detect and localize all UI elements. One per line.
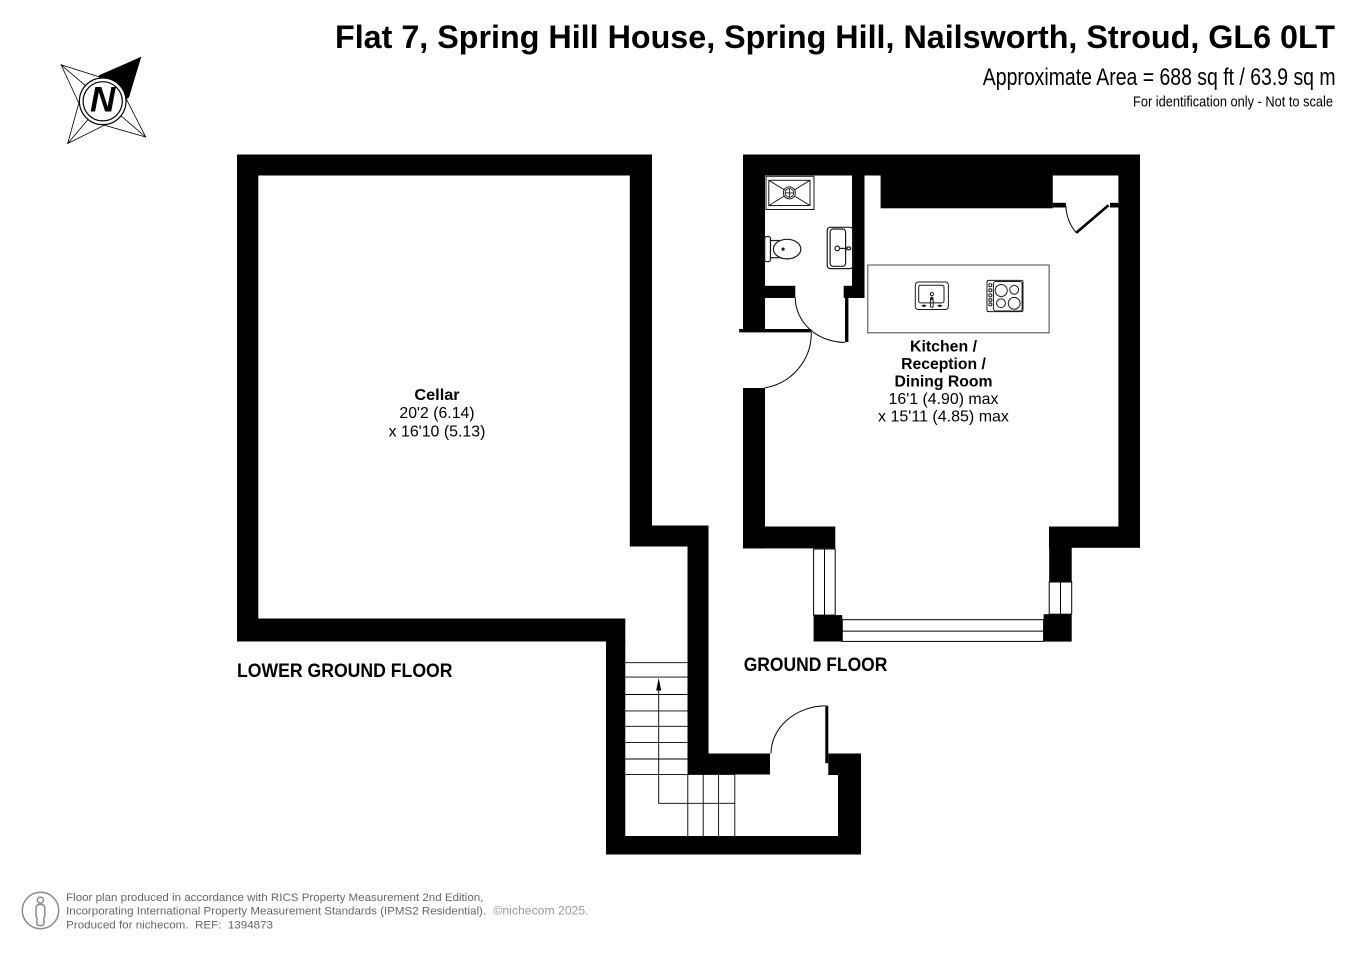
svg-text:GROUND FLOOR: GROUND FLOOR: [744, 654, 888, 676]
svg-text:Incorporating International Pr: Incorporating International Property Mea…: [66, 906, 486, 918]
svg-text:Floor plan produced in accorda: Floor plan produced in accordance with R…: [66, 892, 483, 904]
svg-text:Approximate Area = 688 sq ft /: Approximate Area = 688 sq ft / 63.9 sq m: [983, 64, 1336, 91]
svg-text:Reception /: Reception /: [901, 356, 986, 373]
svg-text:Kitchen /: Kitchen /: [910, 339, 978, 356]
svg-text:Flat 7, Spring Hill House, Spr: Flat 7, Spring Hill House, Spring Hill, …: [335, 19, 1335, 55]
svg-text:For identification only - Not: For identification only - Not to scale: [1133, 94, 1333, 110]
svg-text:Dining Room: Dining Room: [895, 374, 993, 391]
svg-text:x 16'10 (5.13): x 16'10 (5.13): [389, 423, 486, 440]
svg-text:Produced for nichecom. REF:: Produced for nichecom. REF: 1394873: [66, 919, 273, 931]
svg-text:x 15'11 (4.85) max: x 15'11 (4.85) max: [878, 409, 1009, 426]
svg-text:16'1 (4.90) max: 16'1 (4.90) max: [889, 391, 999, 408]
svg-text:20'2 (6.14): 20'2 (6.14): [399, 405, 474, 422]
svg-text:©nichecom 2025.: ©nichecom 2025.: [493, 906, 588, 918]
svg-text:N: N: [90, 81, 116, 120]
svg-text:Cellar: Cellar: [414, 387, 459, 404]
svg-text:LOWER GROUND FLOOR: LOWER GROUND FLOOR: [237, 660, 453, 682]
